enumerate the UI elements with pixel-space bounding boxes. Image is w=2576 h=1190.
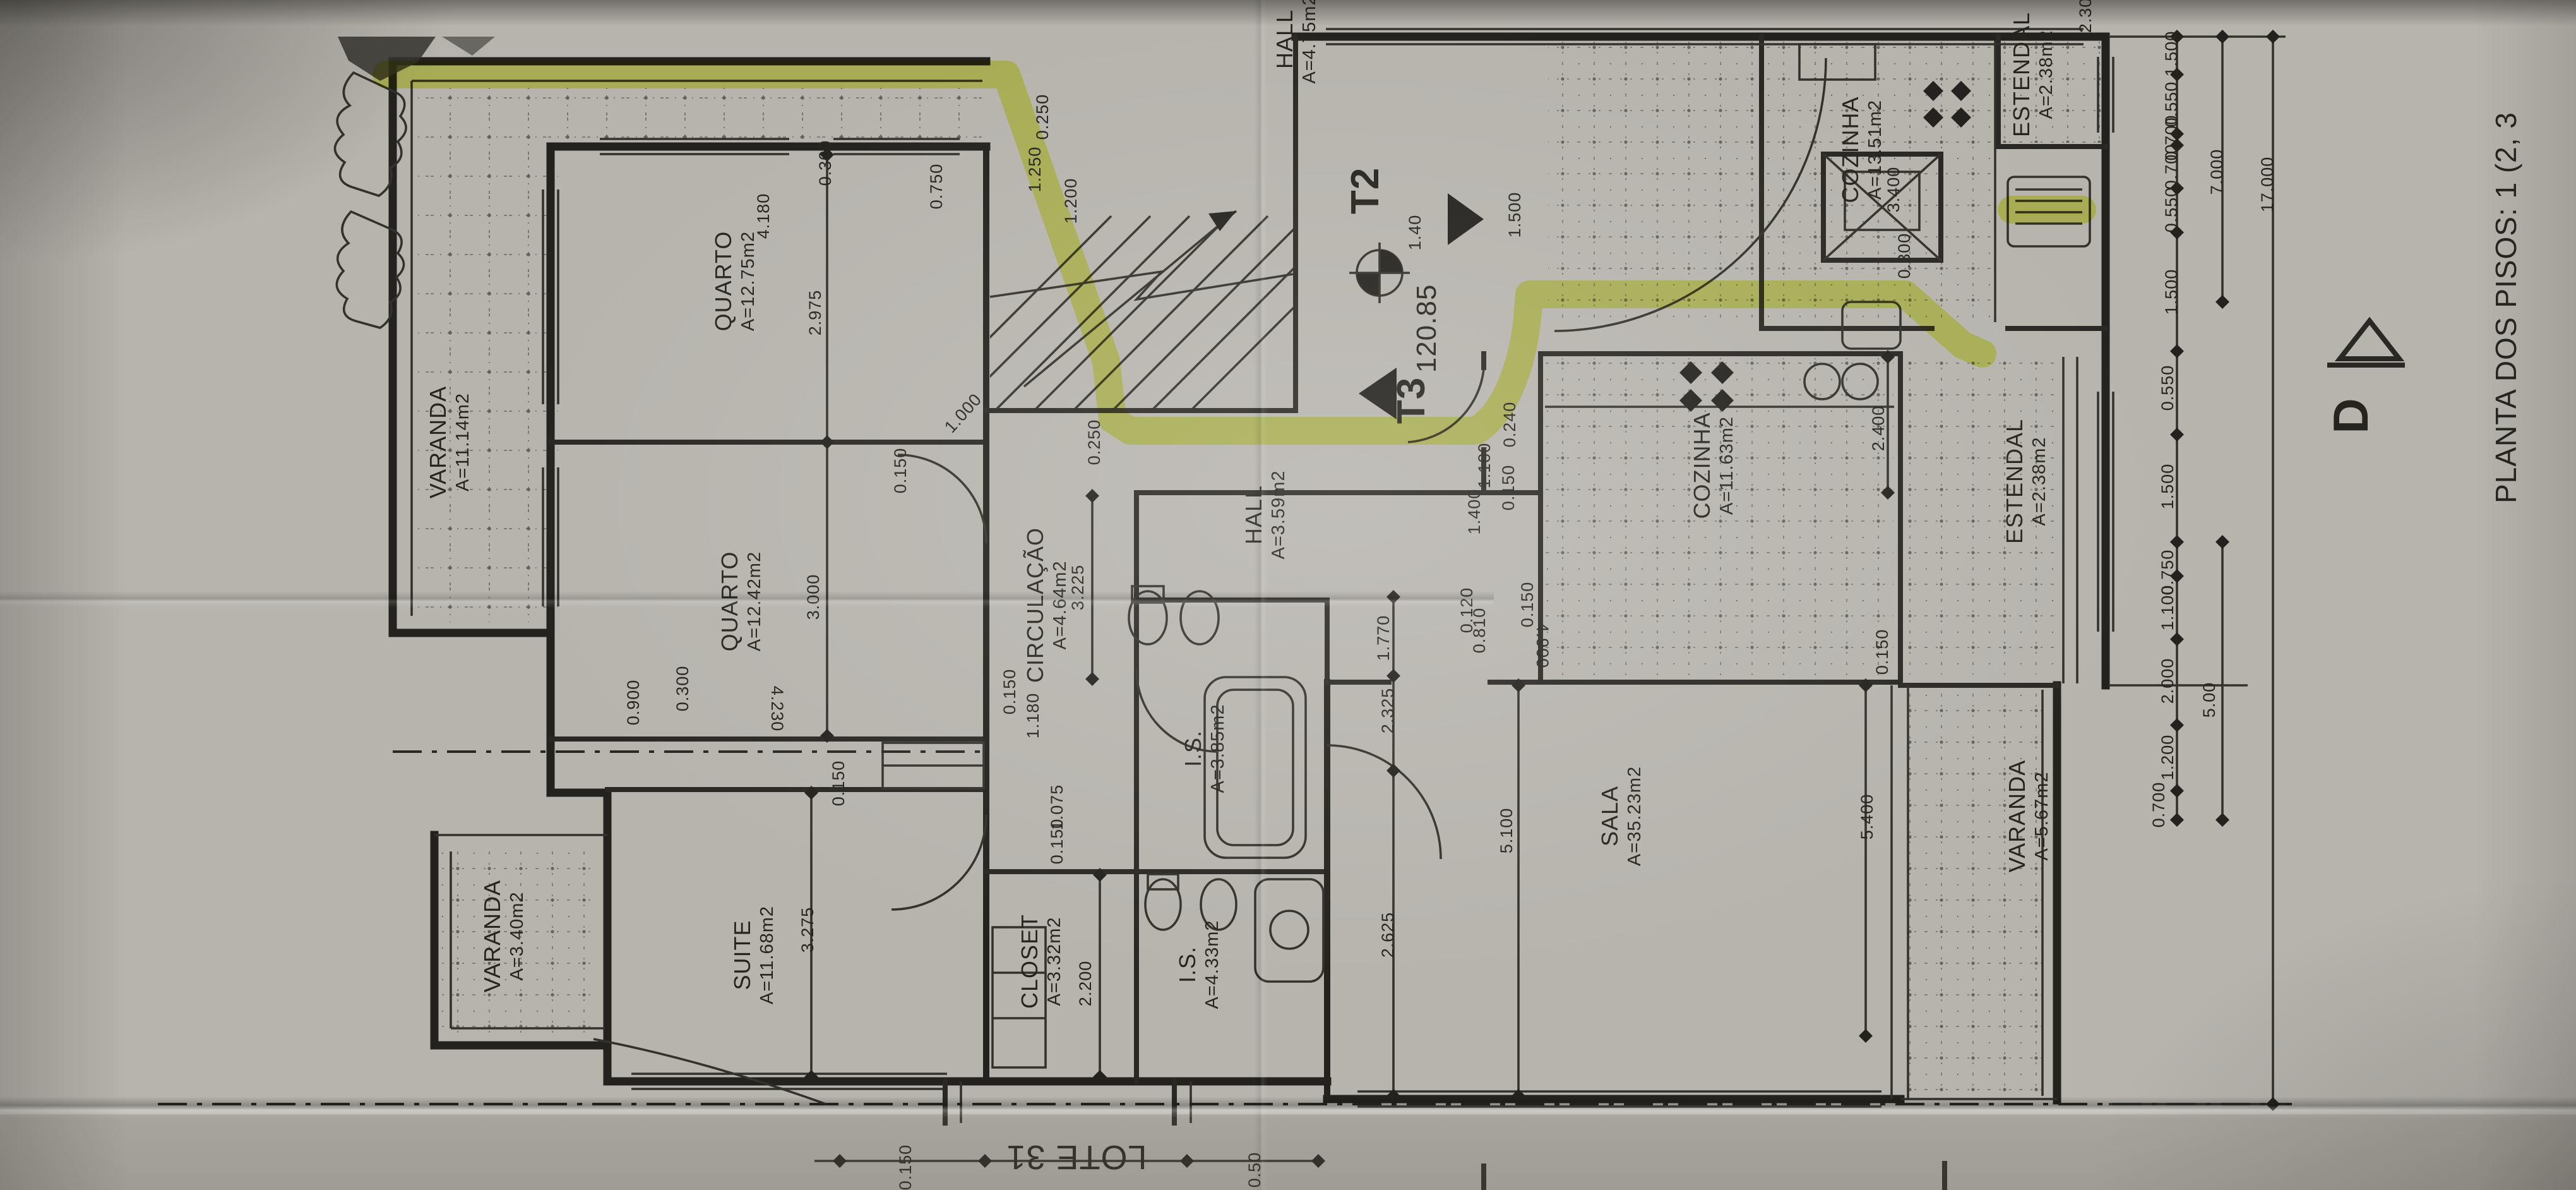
dimension-label: 3.275: [798, 907, 817, 953]
room-name-label: HALL: [1272, 9, 1297, 69]
room-name-label: I.S.: [1174, 946, 1200, 983]
room-name-label: COZINHA: [1837, 97, 1863, 203]
floorplan-drawing: VARANDAA=11.14m2QUARTOA=12.75m2QUARTOA=1…: [0, 0, 2576, 1190]
room-area-label: A=13.51m2: [1865, 100, 1885, 200]
dimension-label: 0.700: [2149, 782, 2168, 828]
dimension-label: 1.100: [1475, 443, 1494, 489]
dimension-label: 4.230: [768, 686, 787, 732]
toilet-icon: [1145, 879, 1181, 930]
dimension-label: 1.000: [941, 390, 986, 436]
dimension-label: 0.300: [816, 140, 835, 186]
apartment-type-t2-label: T2: [1344, 167, 1387, 214]
balcony-left-hatch: [417, 82, 984, 622]
dimension-label: 0.250: [1085, 419, 1104, 466]
room-area-label: A=5.67m2: [2032, 771, 2052, 860]
dimension-label: 0.300: [673, 666, 692, 712]
room-area-label: A=2.38m2: [2029, 436, 2049, 526]
dimension-label: 1.180: [1023, 693, 1042, 739]
dimension-label: 0.550: [2162, 187, 2181, 233]
dimension-label: 1.500: [2162, 269, 2181, 315]
text-labels: VARANDAA=11.14m2QUARTOA=12.75m2QUARTOA=1…: [425, 0, 2522, 1190]
dimension-label: 2.200: [1076, 961, 1095, 1007]
room-name-label: VARANDA: [425, 386, 451, 498]
dimension-label: 1.100: [2158, 585, 2177, 631]
dimension-label: 0.150: [1000, 669, 1019, 715]
dimension-label: 4.900: [1533, 623, 1552, 669]
room-name-label: CLOSET: [1017, 914, 1042, 1009]
suite-door-icon: [891, 815, 986, 910]
room-area-label: A=35.23m2: [1625, 766, 1645, 866]
room-name-label: COZINHA: [1689, 412, 1715, 519]
dimension-label: 1.250: [1025, 147, 1044, 193]
room-name-label: HALL: [1241, 485, 1267, 544]
dimension-label: 3.225: [1068, 565, 1087, 611]
t2-arrow-icon: [1448, 193, 1484, 245]
dimension-label: 0.150: [1873, 629, 1892, 675]
dimension-label: 0.550: [2158, 365, 2177, 411]
dimension-label: 0.150: [1518, 582, 1537, 628]
dimension-label: 1.200: [1061, 178, 1080, 224]
dimension-label: 0.750: [927, 164, 946, 210]
dimension-label: 1.770: [1374, 615, 1393, 661]
room-area-label: A=2.38m2: [2036, 30, 2056, 119]
dimension-label: 0.150: [1047, 819, 1066, 865]
dimension-label: 1.500: [2162, 31, 2181, 77]
dimension-label: 0.150: [1499, 465, 1518, 511]
apartment-type-t3-label: T3: [1390, 377, 1433, 424]
room-name-label: I.S.: [1180, 730, 1206, 767]
room-area-label: A=3.85m2: [1208, 704, 1228, 793]
dimension-label: 2.975: [806, 290, 825, 336]
dimension-label: 0.250: [1033, 94, 1052, 140]
dimension-label: 7.000: [2207, 149, 2226, 195]
room-name-label: VARANDA: [479, 880, 505, 992]
room-name-label: QUARTO: [710, 231, 736, 332]
dimension-label: 2.300: [2076, 0, 2095, 33]
room-name-label: VARANDA: [2004, 760, 2030, 872]
room-area-label: A=3.32m2: [1044, 917, 1064, 1006]
shower-icon: [1255, 879, 1323, 982]
dimension-label: 4.180: [754, 193, 773, 239]
dimension-label: 2.325: [1378, 688, 1397, 734]
floor-level-label: 120.85: [1411, 284, 1442, 373]
room-area-label: A=11.68m2: [757, 906, 777, 1004]
dimension-label: 5.100: [1497, 808, 1516, 854]
room-name-label: ESTENDAL: [2008, 12, 2034, 137]
dimension-label: 5.00: [2200, 682, 2219, 718]
dimension-label: 17.000: [2258, 157, 2277, 213]
sala-door-icon: [1327, 745, 1441, 859]
room-name-label: QUARTO: [717, 551, 742, 652]
room-area-label: A=4.64m2: [1050, 560, 1070, 649]
room-area-label: A=12.75m2: [738, 231, 758, 331]
room-area-label: A=4.33m2: [1202, 920, 1222, 1009]
balcony-right-hatch: [1907, 690, 2047, 1091]
lot-number-label: LOTE 31: [1006, 1138, 1147, 1176]
floorplan-photo: VARANDAA=11.14m2QUARTOA=12.75m2QUARTOA=1…: [0, 0, 2576, 1190]
is-door-icon: [1136, 670, 1219, 752]
stair-direction-arrow-icon: [1208, 211, 1236, 231]
dimension-label: 2.625: [1378, 912, 1397, 958]
room-area-label: A=3.40m2: [507, 891, 527, 980]
room-name-label: SALA: [1597, 786, 1623, 846]
dimension-label: 1.400: [1465, 489, 1484, 535]
dimension-label: 0.300: [1895, 233, 1914, 279]
dimension-label: 1.200: [2158, 735, 2177, 781]
room-name-label: CIRCULAÇÃO: [1022, 527, 1048, 683]
dimension-label: 0.700: [2162, 144, 2181, 190]
dimension-label: 2.400: [1869, 406, 1888, 452]
common-hall-floor-hatch: [1548, 40, 1756, 318]
section-letter-label: D: [2323, 397, 2378, 433]
room-area-label: A=4.75m2: [1299, 0, 1320, 84]
room-area-label: A=3.59m2: [1268, 470, 1289, 559]
room-name-label: ESTENDAL: [2001, 419, 2027, 544]
room-name-label: SUITE: [729, 920, 755, 990]
dimension-label: 5.400: [1857, 794, 1876, 840]
dimension-label: 3.000: [804, 574, 823, 620]
dimension-label: 3.400: [1884, 167, 1903, 213]
dimension-label: 0.150: [829, 760, 848, 807]
dimension-label: 0.50: [1245, 1152, 1264, 1188]
dimension-label: 1.500: [1505, 192, 1524, 238]
dimension-label: 0.900: [624, 680, 643, 726]
dimension-label: 0.150: [891, 448, 910, 494]
room-area-label: A=12.42m2: [744, 551, 765, 651]
room-area-label: A=11.14m2: [453, 393, 473, 491]
drawing-title: PLANTA DOS PISOS: 1 (2, 3: [2490, 112, 2522, 503]
level-marker-icon: [1349, 243, 1410, 303]
dimension-label: 0.810: [1470, 608, 1489, 654]
section-d-icon: [2330, 321, 2402, 365]
dimension-label: 1.500: [2158, 464, 2177, 510]
dimension-label: 2.000: [2158, 658, 2177, 704]
dimension-label: 0.240: [1500, 402, 1519, 448]
dimension-label: 0.150: [896, 1145, 915, 1190]
room-area-label: A=11.63m2: [1717, 416, 1737, 515]
dimension-label: 1.40: [1405, 215, 1424, 251]
bedroom-door-icon: [898, 455, 986, 543]
